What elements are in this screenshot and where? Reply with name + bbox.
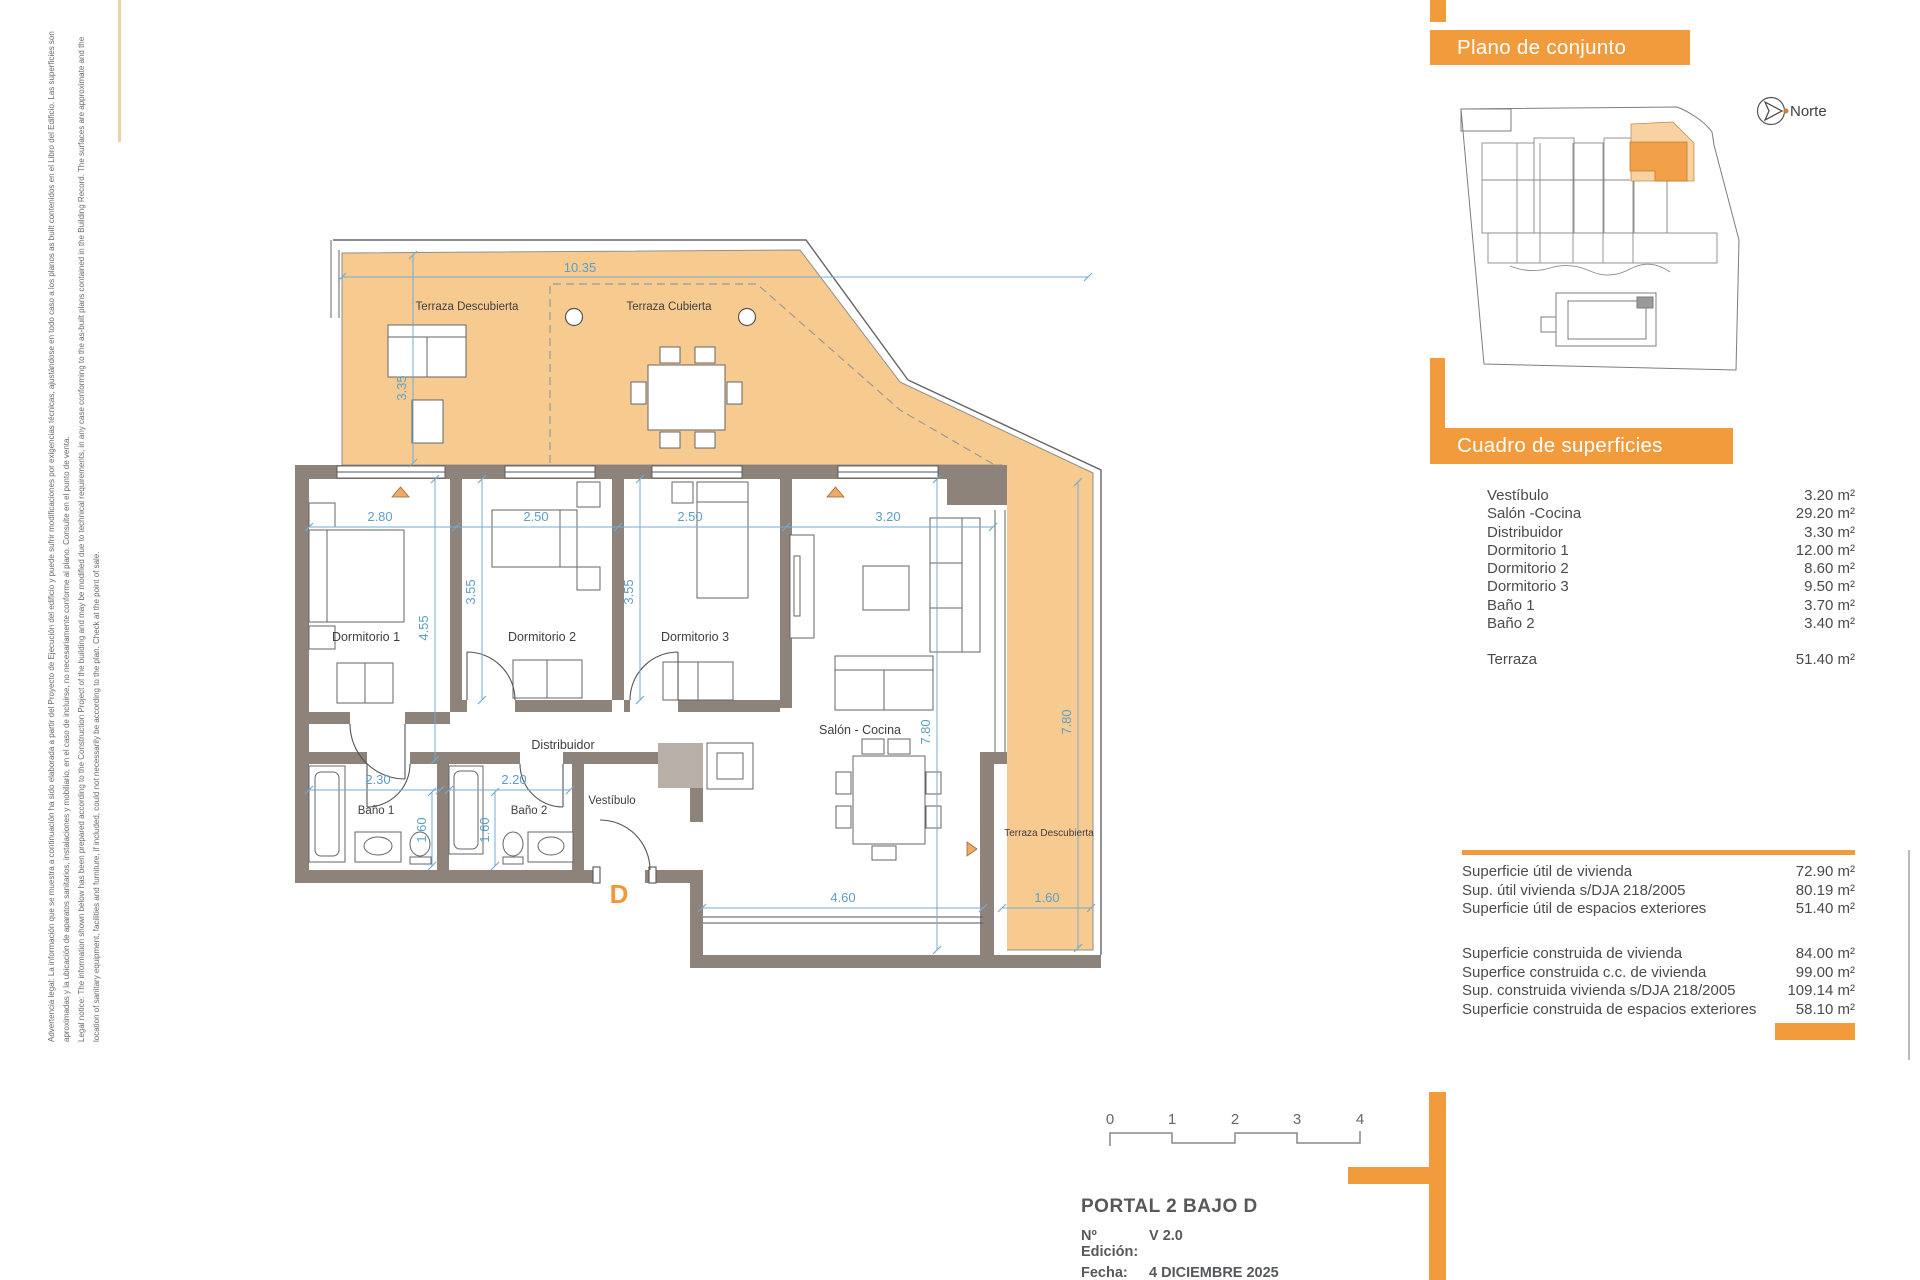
site-panel-title: Plano de conjunto [1457,36,1626,60]
table-row-terraza: Terraza51.40 m² [1487,651,1855,669]
frame-edge-line [118,0,121,142]
scale-tick: 1 [1168,1111,1176,1128]
summary-built: Superficie construida de vivienda84.00 m… [1462,945,1855,1019]
row-value: 12.00 m² [1796,542,1855,560]
north-label: Norte [1790,103,1827,120]
row-label: Superficie construida de espacios exteri… [1462,1001,1756,1020]
label-dormitorio1: Dormitorio 1 [332,630,400,644]
summary-row: Superficie útil de espacios exteriores51… [1462,900,1855,919]
legal-line-1: Advertencia legal: La información que se… [44,31,59,1042]
row-value: 84.00 m² [1796,945,1855,964]
row-label: Dormitorio 1 [1487,542,1569,560]
table-row: Salón -Cocina29.20 m² [1487,505,1855,523]
row-label: Superficie construida de vivienda [1462,945,1682,964]
site-panel-header: Plano de conjunto [1430,30,1690,65]
row-value: 3.30 m² [1804,524,1855,542]
scale-bar: 0 1 2 3 4 [1095,1105,1385,1155]
legal-disclaimer: Advertencia legal: La información que se… [44,31,104,1042]
dim-b2h: 1.60 [477,817,492,842]
summary-bottom-accent [1775,1023,1855,1040]
dim-terr-h: 7.80 [1059,709,1074,734]
summary-side-line [1908,850,1910,1060]
label-bano2: Baño 2 [511,805,547,817]
floorplan-sheet: Advertencia legal: La información que se… [0,0,1920,1280]
row-value: 80.19 m² [1796,882,1855,901]
unit-letter: D [610,879,629,909]
row-value: 3.20 m² [1804,487,1855,505]
table-row: Vestíbulo3.20 m² [1487,487,1855,505]
row-value: 29.20 m² [1796,505,1855,523]
row-label: Vestíbulo [1487,487,1549,505]
row-label: Terraza [1487,651,1537,669]
label-bano1: Baño 1 [358,805,394,817]
label-terraza-descubierta-2: Terraza Descubierta [1004,828,1094,839]
row-label: Superfice construida c.c. de vivienda [1462,964,1706,983]
surfaces-table: Vestíbulo3.20 m² Salón -Cocina29.20 m² D… [1487,487,1855,670]
label-dormitorio2: Dormitorio 2 [508,630,576,644]
label-distribuidor: Distribuidor [531,738,594,752]
table-row: Baño 23.40 m² [1487,615,1855,633]
row-label: Superficie útil de espacios exteriores [1462,900,1706,919]
row-value: 109.14 m² [1787,982,1855,1001]
date-label: Fecha: [1081,1265,1149,1280]
scale-tick: 4 [1356,1111,1364,1128]
dim-top: 10.35 [564,260,597,275]
dim-d1w: 2.80 [367,509,392,524]
date-value: 4 DICIEMBRE 2025 [1149,1265,1279,1280]
site-pool [1541,293,1656,346]
row-label: Dormitorio 3 [1487,578,1569,596]
summary-top-rule [1462,850,1855,855]
label-vestibulo: Vestíbulo [588,795,635,807]
legal-line-2: aproximadas y la ubicación de aparatos s… [59,31,74,1042]
edition-value: V 2.0 [1149,1228,1183,1260]
row-label: Baño 2 [1487,615,1535,633]
row-value: 58.10 m² [1796,1001,1855,1020]
row-value: 51.40 m² [1796,900,1855,919]
row-value: 8.60 m² [1804,560,1855,578]
floor-plan: 10.35 3.35 2.80 2.50 2.50 3.20 4.55 3.55… [270,195,1160,995]
edition-row: Nº Edición: V 2.0 [1081,1228,1279,1260]
summary-row: Superficie construida de espacios exteri… [1462,1001,1855,1020]
legal-line-3: Legal notice: The information shown belo… [74,31,89,1042]
dim-left: 3.35 [394,375,409,400]
row-value: 9.50 m² [1804,578,1855,596]
dim-d1h: 4.55 [416,615,431,640]
row-label: Salón -Cocina [1487,505,1581,523]
frame-mark-vertical [1429,1092,1446,1280]
dim-salonh: 7.80 [918,719,933,744]
row-value: 99.00 m² [1796,964,1855,983]
sheet-title: PORTAL 2 BAJO D [1081,1196,1279,1218]
surfaces-panel-title: Cuadro de superficies [1457,434,1663,458]
dim-terr-w: 1.60 [1034,890,1059,905]
site-plan [1455,95,1755,395]
dim-b2w: 2.20 [501,772,526,787]
row-label: Baño 1 [1487,597,1535,615]
scale-tick: 2 [1231,1111,1239,1128]
dim-d2h: 3.55 [463,579,478,604]
label-dormitorio3: Dormitorio 3 [661,630,729,644]
label-salon: Salón - Cocina [819,723,901,737]
row-label: Superficie útil de vivienda [1462,863,1632,882]
title-block: PORTAL 2 BAJO D Nº Edición: V 2.0 Fecha:… [1081,1196,1279,1280]
table-row: Distribuidor3.30 m² [1487,524,1855,542]
row-label: Distribuidor [1487,524,1563,542]
dim-b1h: 1.60 [414,817,429,842]
summary-row: Superficie útil de vivienda72.90 m² [1462,863,1855,882]
scale-tick: 0 [1106,1111,1114,1128]
row-value: 3.70 m² [1804,597,1855,615]
site-panel-tab [1430,0,1446,22]
legal-line-4: location of sanitary equipment, faciliti… [89,31,104,1042]
summary-row: Sup. útil vivienda s/DJA 218/200580.19 m… [1462,882,1855,901]
surfaces-panel-tab [1430,358,1445,429]
table-row: Dormitorio 112.00 m² [1487,542,1855,560]
dim-d3w: 2.50 [677,509,702,524]
summary-useful: Superficie útil de vivienda72.90 m² Sup.… [1462,863,1855,919]
scale-tick: 3 [1293,1111,1301,1128]
dim-d2w: 2.50 [523,509,548,524]
row-label: Dormitorio 2 [1487,560,1569,578]
dim-salonw: 3.20 [875,509,900,524]
row-label: Sup. construida vivienda s/DJA 218/2005 [1462,982,1736,1001]
dim-salon-bottom: 4.60 [830,890,855,905]
label-terraza-descubierta: Terraza Descubierta [416,301,520,313]
summary-row: Superfice construida c.c. de vivienda99.… [1462,964,1855,983]
row-value: 51.40 m² [1796,651,1855,669]
edition-label: Nº Edición: [1081,1228,1149,1260]
date-row: Fecha: 4 DICIEMBRE 2025 [1081,1265,1279,1280]
surfaces-panel-header: Cuadro de superficies [1430,428,1733,464]
table-row: Dormitorio 28.60 m² [1487,560,1855,578]
summary-row: Sup. construida vivienda s/DJA 218/20051… [1462,982,1855,1001]
table-row: Baño 13.70 m² [1487,597,1855,615]
dim-d3h: 3.55 [621,579,636,604]
label-terraza-cubierta: Terraza Cubierta [626,301,712,313]
row-value: 3.40 m² [1804,615,1855,633]
summary-row: Superficie construida de vivienda84.00 m… [1462,945,1855,964]
row-label: Sup. útil vivienda s/DJA 218/2005 [1462,882,1685,901]
frame-mark-horizontal [1348,1167,1429,1184]
dim-b1w: 2.30 [365,772,390,787]
table-row: Dormitorio 39.50 m² [1487,578,1855,596]
row-value: 72.90 m² [1796,863,1855,882]
